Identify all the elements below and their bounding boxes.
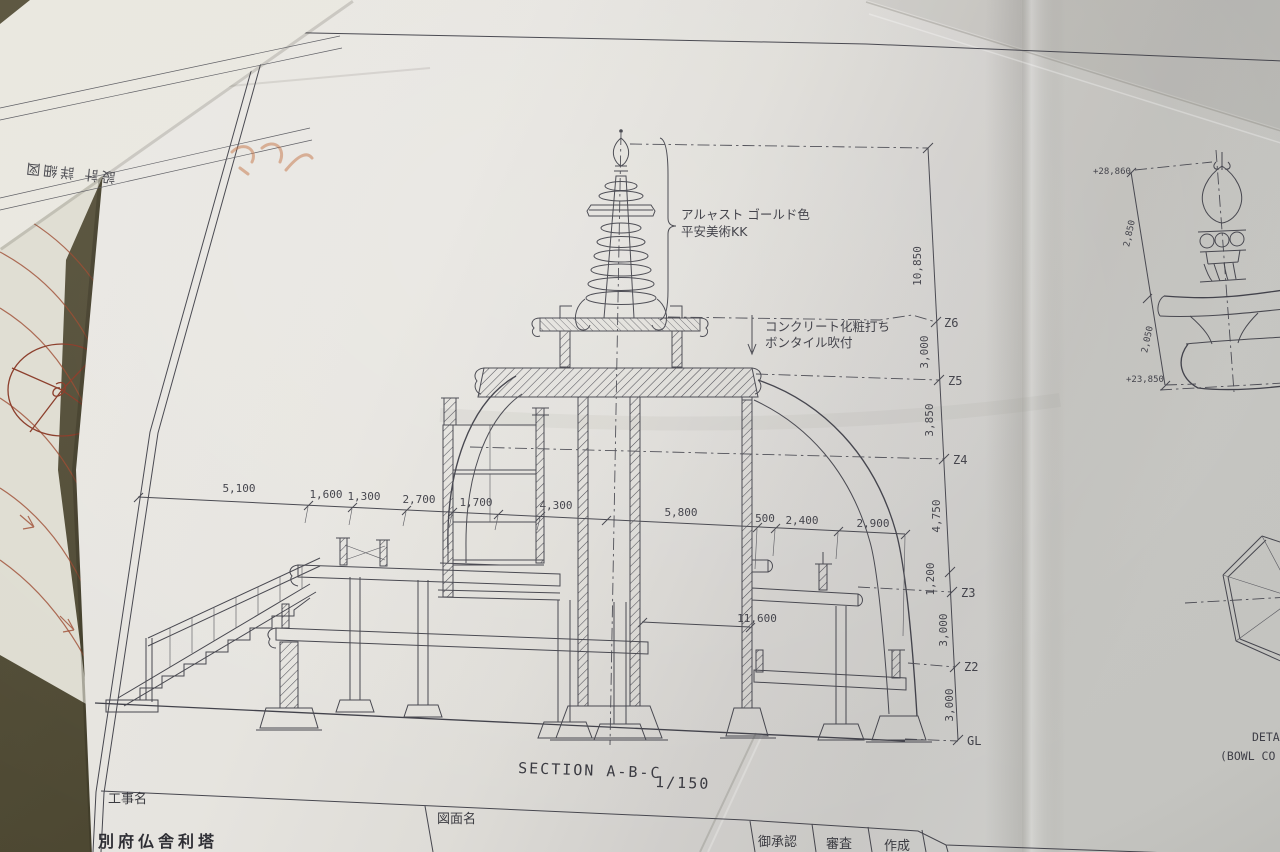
vdim-10850: 10,850	[911, 246, 924, 286]
vdim-3000b: 3,000	[937, 613, 950, 646]
dim-4300: 4,300	[539, 499, 572, 512]
level-z6: Z6	[944, 316, 958, 330]
vdim-3000c: 3,000	[943, 688, 956, 721]
photo-of-blueprint: 5,100 1,600 1,300 2,700 1,700 4,300 5,80…	[0, 0, 1280, 852]
detail-elevation-bottom: +23,850	[1126, 375, 1164, 385]
level-gl: GL	[967, 734, 981, 748]
level-z4: Z4	[953, 453, 967, 467]
dim-1300: 1,300	[347, 490, 380, 503]
dim-5800: 5,800	[664, 506, 697, 519]
project-name: 別府仏舎利塔	[98, 832, 218, 851]
finial-note-line2: 平安美術KK	[681, 224, 748, 239]
dim-2400: 2,400	[785, 514, 818, 527]
dim-5100: 5,100	[222, 482, 255, 495]
vdim-4750: 4,750	[930, 499, 943, 532]
dome-crown-slab	[475, 368, 761, 397]
level-z5: Z5	[948, 374, 962, 388]
dim-2700: 2,700	[402, 493, 435, 506]
section-scale: 1/150	[655, 773, 711, 793]
level-z3: Z3	[961, 586, 975, 600]
detail-caption-line1: DETAI	[1252, 730, 1280, 744]
review-label: 審査	[826, 837, 852, 852]
vdim-3000a: 3,000	[918, 335, 931, 368]
detail-caption-line2: (BOWL CO	[1220, 749, 1275, 763]
dim-500: 500	[755, 512, 775, 525]
vdim-1200: 1,200	[924, 562, 937, 595]
drawing-label: 図面名	[437, 811, 476, 827]
dim-2900: 2,900	[856, 517, 889, 530]
dim-11600: 11,600	[737, 612, 777, 625]
concrete-note-line2: ボンタイル吹付	[765, 335, 853, 350]
vdim-3850: 3,850	[923, 403, 936, 436]
level-z2: Z2	[964, 660, 978, 674]
detail-elevation-top: +28,860	[1093, 167, 1131, 177]
blueprint-scene: 5,100 1,600 1,300 2,700 1,700 4,300 5,80…	[0, 0, 1280, 852]
dim-1700: 1,700	[459, 496, 492, 509]
project-label: 工事名	[108, 791, 147, 807]
concrete-note-line1: コンクリート化粧打ち	[765, 319, 890, 334]
finial-note-line1: アルャスト ゴールド色	[681, 207, 810, 222]
create-label: 作成	[884, 839, 910, 852]
approve-label: 御承認	[758, 834, 797, 850]
dim-1600: 1,600	[309, 488, 342, 501]
